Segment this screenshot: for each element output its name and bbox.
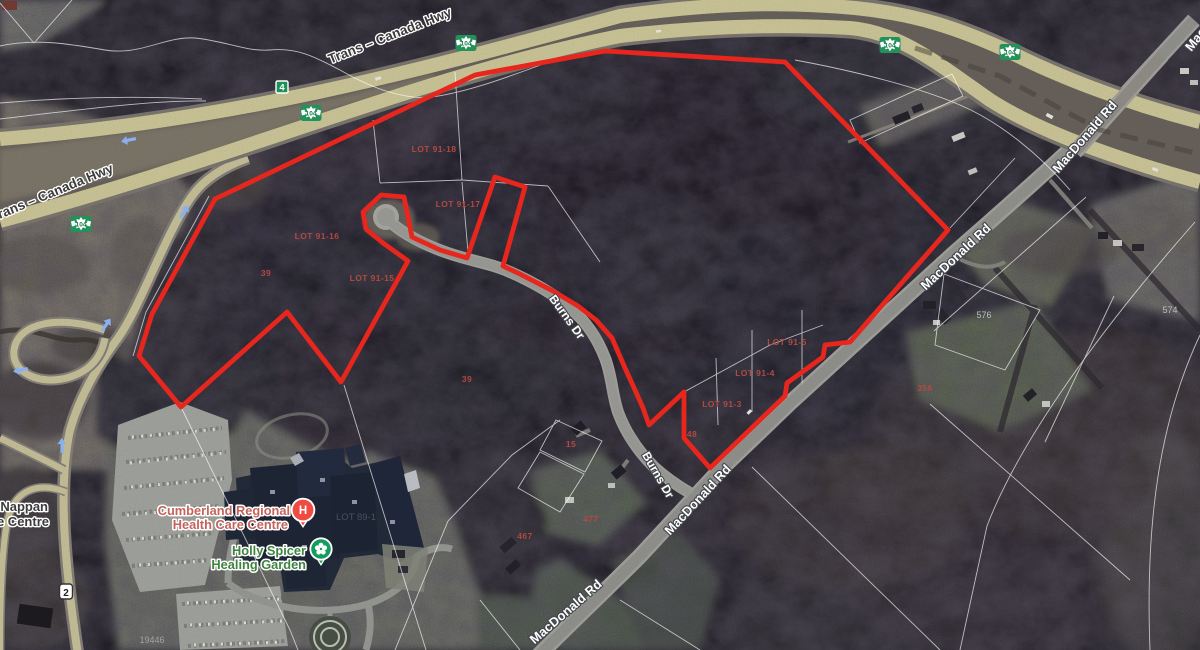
svg-text:467: 467 <box>517 531 532 541</box>
svg-text:LOT 91-18: LOT 91-18 <box>412 144 457 154</box>
svg-text:477: 477 <box>583 514 598 524</box>
svg-text:39: 39 <box>462 374 472 384</box>
svg-text:576: 576 <box>976 310 991 320</box>
svg-text:LOT 91-17: LOT 91-17 <box>436 199 481 209</box>
svg-text:4: 4 <box>279 83 285 94</box>
svg-text:39: 39 <box>261 268 271 278</box>
svg-text:e Centre: e Centre <box>0 514 49 529</box>
svg-text:Healing Garden: Healing Garden <box>211 557 306 572</box>
svg-text:Nappan: Nappan <box>0 499 48 514</box>
svg-text:LOT 91-15: LOT 91-15 <box>350 273 395 283</box>
svg-text:356: 356 <box>917 383 932 393</box>
svg-text:15: 15 <box>566 439 576 449</box>
svg-text:Health Care Centre: Health Care Centre <box>173 517 288 532</box>
svg-text:LOT 91-3: LOT 91-3 <box>702 399 742 409</box>
svg-text:LOT 89-1: LOT 89-1 <box>336 512 376 523</box>
svg-text:19446: 19446 <box>139 635 164 645</box>
svg-text:48: 48 <box>687 429 697 439</box>
svg-text:574: 574 <box>1162 305 1177 315</box>
svg-text:2: 2 <box>63 588 69 599</box>
svg-text:104: 104 <box>76 221 87 228</box>
svg-text:LOT 91-16: LOT 91-16 <box>295 231 340 241</box>
svg-text:LOT 91-5: LOT 91-5 <box>767 337 807 347</box>
svg-text:H: H <box>299 505 307 517</box>
svg-text:Holly Spicer: Holly Spicer <box>232 543 306 558</box>
svg-text:Cumberland Regional: Cumberland Regional <box>158 503 290 518</box>
svg-text:LOT 91-4: LOT 91-4 <box>735 368 775 378</box>
